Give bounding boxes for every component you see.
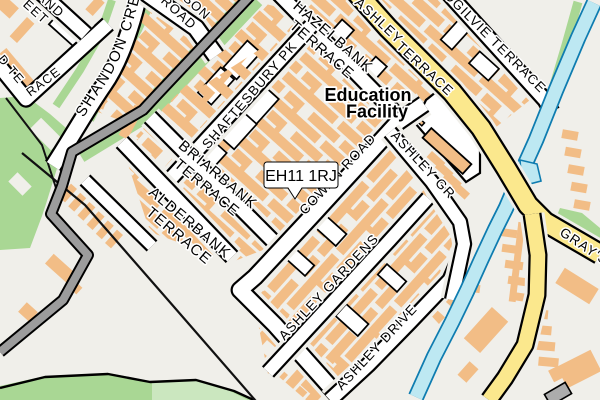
svg-text:Facility: Facility [346,102,408,122]
svg-text:EH11 1RJ: EH11 1RJ [265,168,337,185]
